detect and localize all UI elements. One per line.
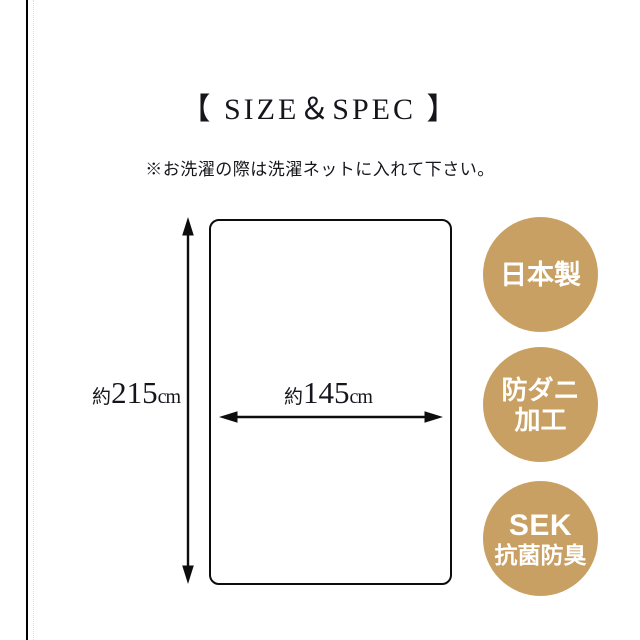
arrowhead-down-icon [182,566,194,585]
height-approx-prefix: 約 [92,387,111,408]
badge-sek-antibacterial: SEK 抗菌防臭 [483,481,598,596]
badge-made-in-japan: 日本製 [483,217,598,332]
width-value: 145 [303,375,350,410]
size-spec-panel: 【 SIZE＆SPEC 】 ※お洗濯の際は洗濯ネットに入れて下さい。 約215c… [0,0,640,640]
height-dimension-label: 約215cm [62,375,180,417]
width-approx-prefix: 約 [284,387,303,408]
vertical-dimension-arrow [182,217,194,584]
height-unit: cm [158,386,180,408]
washing-note: ※お洗濯の際は洗濯ネットに入れて下さい。 [0,155,640,180]
badge-anti-mite-line1: 防ダニ [501,375,579,405]
badge-sek-line1: SEK [509,509,572,542]
arrowhead-up-icon [182,217,194,236]
badge-sek-line2: 抗菌防臭 [495,542,587,569]
width-unit: cm [350,386,372,408]
width-dimension-label: 約145cm [229,375,427,417]
height-value: 215 [111,375,158,410]
badge-anti-mite: 防ダニ 加工 [483,347,598,462]
badge-anti-mite-line2: 加工 [514,405,566,435]
badge-made-in-japan-label: 日本製 [500,259,581,291]
page-title: 【 SIZE＆SPEC 】 [0,84,640,128]
